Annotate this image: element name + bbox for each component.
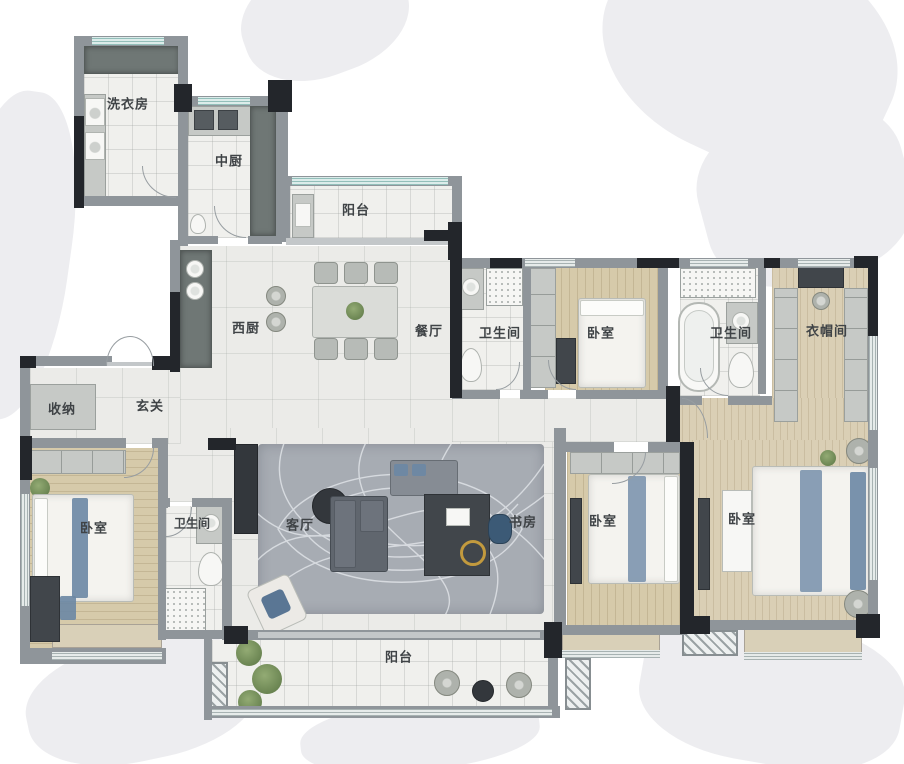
room-label-west-kitchen: 西厨 [232, 318, 260, 337]
bay-window-sill [744, 627, 862, 653]
master-dresser [722, 490, 752, 572]
dining-stool [266, 286, 286, 306]
wall-black [74, 116, 84, 208]
window [562, 650, 660, 658]
wall-black [692, 616, 710, 634]
wall-black [490, 258, 522, 268]
west-kitchen-sink [186, 260, 204, 278]
room-label-closet: 衣帽间 [806, 321, 848, 340]
daybed-pillow [412, 464, 426, 476]
master-tv-cabinet [698, 498, 710, 590]
wall-black [764, 258, 780, 268]
bath2-shower [680, 268, 756, 298]
dryer-machine [85, 132, 105, 160]
closet-wardrobe-right [844, 288, 868, 422]
wall [170, 240, 180, 300]
laptop [446, 508, 470, 526]
floor-plan: 洗衣房 中厨 阳台 西厨 餐厅 卫生间 卧室 卫生间 衣帽间 收纳 玄关 卧室 … [0, 0, 904, 764]
room-label-balcony-bottom: 阳台 [385, 647, 413, 666]
room-label-study: 书房 [509, 512, 537, 531]
window [212, 709, 552, 716]
balcony-table [472, 680, 494, 702]
closet-wardrobe-left [774, 288, 798, 422]
dining-chair [374, 338, 398, 360]
wall-black [20, 356, 36, 368]
master-pillow [850, 472, 866, 590]
window [690, 259, 748, 267]
entry-door-arc [130, 336, 154, 366]
entry-door-arc [106, 336, 130, 366]
sofa-cushion [360, 500, 384, 532]
bay-window-sill [52, 624, 162, 648]
wall-black [174, 84, 192, 112]
window [198, 97, 250, 105]
wall-black [680, 442, 694, 634]
kitchen-sink [218, 110, 238, 130]
wall-black [868, 258, 878, 336]
window [798, 259, 850, 267]
wall-black [208, 438, 236, 450]
west-kitchen-sink [186, 282, 204, 300]
window [869, 468, 877, 580]
wall [178, 96, 188, 246]
dining-chair [314, 262, 338, 284]
washing-machine [85, 98, 105, 126]
sofa-cushion [334, 500, 356, 568]
room-label-laundry: 洗衣房 [107, 94, 149, 113]
wall [222, 498, 232, 640]
bed-left-chair [60, 596, 76, 620]
room-label-bath-2: 卫生间 [710, 323, 752, 342]
window [525, 259, 575, 267]
dining-chair [344, 262, 368, 284]
wall [282, 184, 290, 242]
dining-chair [374, 262, 398, 284]
balcony-sink [295, 203, 311, 227]
dining-stool [266, 312, 286, 332]
room-label-foyer: 玄关 [136, 396, 164, 415]
bath1-basin [462, 278, 480, 296]
window [869, 336, 877, 430]
wall [576, 390, 670, 399]
tv-wall [234, 444, 258, 534]
wall-black [450, 241, 462, 398]
bed-mid-tv-cabinet [570, 498, 582, 584]
wall [694, 620, 878, 630]
daybed-pillow [394, 464, 408, 476]
wall-black [224, 626, 248, 644]
wall-black [268, 80, 292, 112]
bath3-shower [164, 588, 206, 632]
wall [248, 236, 282, 244]
balcony-plant [252, 664, 282, 694]
wall [523, 262, 531, 394]
kitchen-counter [250, 106, 276, 236]
wall [20, 438, 126, 448]
bed-left-wardrobe [30, 450, 126, 474]
wall-black [637, 258, 679, 268]
wall-black [544, 622, 562, 658]
bed-mid-runner [628, 476, 646, 582]
table-plant [346, 302, 364, 320]
room-label-balcony-top: 阳台 [342, 200, 370, 219]
master-bed-runner [800, 470, 822, 592]
watermark-stroke [225, 0, 424, 101]
desk-lamp [460, 540, 486, 566]
room-label-bed-mid: 卧室 [589, 511, 617, 530]
room-label-bath-3: 卫生间 [174, 515, 210, 532]
sliding-door [258, 632, 540, 638]
window [21, 494, 29, 606]
bed-left-desk [30, 576, 60, 642]
kitchen-fixture [190, 214, 206, 234]
hall-side-floor [166, 444, 234, 502]
wall [158, 504, 166, 640]
room-label-living: 客厅 [286, 515, 314, 534]
wall [557, 442, 614, 452]
wall-black [666, 386, 680, 442]
wall-black [20, 436, 32, 480]
bed-left-runner [72, 498, 88, 598]
wall [452, 176, 462, 228]
wall [648, 442, 682, 452]
wall [557, 625, 687, 635]
wall [728, 396, 772, 405]
wall [520, 390, 548, 399]
balcony-chair [506, 672, 532, 698]
wall-black [170, 292, 180, 372]
wall-black [856, 614, 880, 638]
balcony-chair [434, 670, 460, 696]
bed-mid-pillow [664, 476, 678, 582]
dining-chair [314, 338, 338, 360]
bath2-toilet [728, 352, 754, 388]
equipment-platform [565, 658, 591, 710]
closet-stool [812, 292, 830, 310]
room-label-storage: 收纳 [48, 399, 76, 418]
bath1-toilet [460, 348, 482, 382]
kitchen-sink [194, 110, 214, 130]
window [744, 652, 862, 660]
master-plant [820, 450, 836, 466]
bath3-toilet [198, 552, 224, 586]
room-label-bath-1: 卫生间 [479, 323, 521, 342]
room-label-kitchen-cn: 中厨 [215, 151, 243, 170]
wall [554, 428, 566, 630]
wall [158, 630, 234, 639]
bed-top-pillow [580, 300, 644, 316]
bath1-shower [486, 268, 523, 306]
wall [658, 262, 668, 394]
window [292, 177, 448, 185]
room-label-bed-master: 卧室 [728, 509, 756, 528]
window [92, 37, 164, 45]
window [52, 652, 162, 660]
laundry-shelf [84, 46, 180, 74]
wall [182, 236, 218, 244]
wall [758, 262, 766, 394]
dining-chair [344, 338, 368, 360]
room-label-bed-top: 卧室 [587, 323, 615, 342]
room-label-dining: 餐厅 [415, 321, 443, 340]
room-label-bed-left: 卧室 [80, 518, 108, 537]
